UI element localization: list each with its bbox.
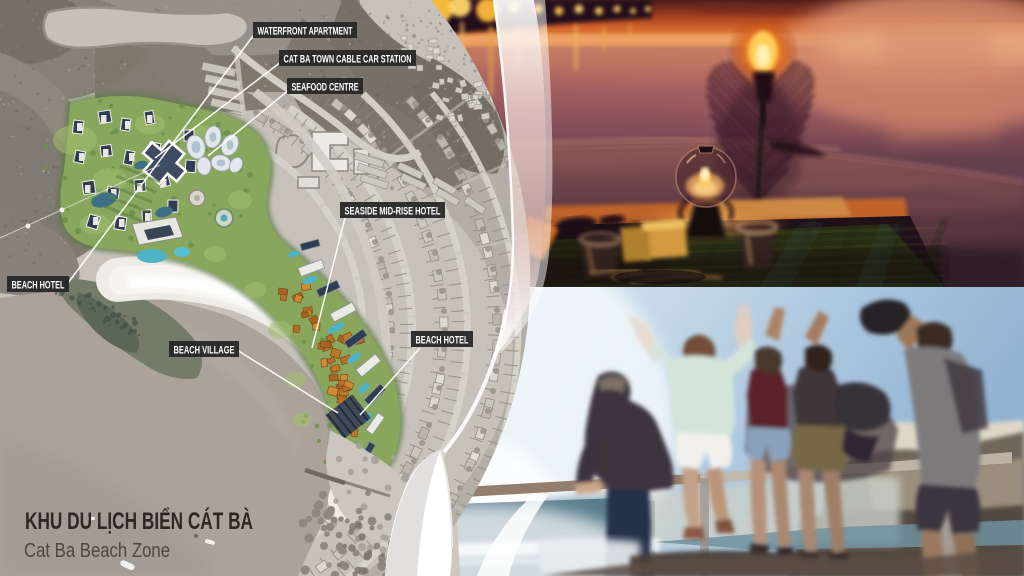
svg-text:BEACH VILLAGE: BEACH VILLAGE xyxy=(174,345,235,357)
svg-text:WATERFRONT APARTMENT: WATERFRONT APARTMENT xyxy=(258,26,353,38)
svg-text:SEAFOOD CENTRE: SEAFOOD CENTRE xyxy=(292,82,359,94)
svg-text:BEACH HOTEL: BEACH HOTEL xyxy=(416,335,469,347)
svg-text:CAT BA TOWN CABLE CAR STATION: CAT BA TOWN CABLE CAR STATION xyxy=(284,54,412,66)
svg-text:Cat Ba Beach Zone: Cat Ba Beach Zone xyxy=(24,539,170,562)
svg-text:KHU DU LỊCH BIỂN CÁT BÀ: KHU DU LỊCH BIỂN CÁT BÀ xyxy=(25,507,253,535)
svg-text:SEASIDE MID-RISE HOTEL: SEASIDE MID-RISE HOTEL xyxy=(345,206,441,218)
svg-text:BEACH HOTEL: BEACH HOTEL xyxy=(12,280,65,292)
